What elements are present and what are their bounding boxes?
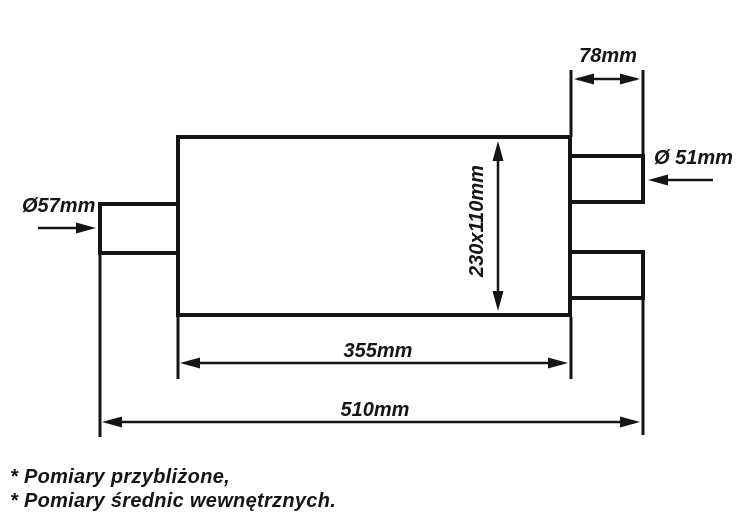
arrowhead-right-icon <box>620 74 640 85</box>
arrowhead-right-icon <box>620 417 640 428</box>
label-total-length: 510mm <box>341 399 410 421</box>
label-outlet-pipe-length: 78mm <box>579 45 637 67</box>
arrowhead-right-icon <box>548 358 568 369</box>
arrowhead-left-icon <box>102 417 122 428</box>
footnote-measurements-approximate: * Pomiary przybliżone, <box>10 465 336 489</box>
footnotes: * Pomiary przybliżone, * Pomiary średnic… <box>10 465 336 513</box>
label-inlet-diameter: Ø57mm <box>22 195 95 217</box>
outlet-pipe-bottom-outline <box>570 252 643 298</box>
label-outlet-diameter: Ø 51mm <box>654 147 733 169</box>
muffler-body-outline <box>178 137 570 315</box>
muffler-dimension-drawing: 78mm Ø57mm Ø 51mm 230x110mm 355mm 510mm … <box>0 0 750 519</box>
arrowhead-left-icon <box>574 74 594 85</box>
inlet-pipe-outline <box>100 204 178 253</box>
outlet-pipe-top-outline <box>570 156 643 202</box>
arrowhead-right-icon <box>76 223 96 234</box>
label-body-cross-section: 230x110mm <box>466 165 488 278</box>
label-body-length: 355mm <box>344 340 413 362</box>
footnote-inner-diameters: * Pomiary średnic wewnętrznych. <box>10 489 336 513</box>
arrowhead-left-icon <box>180 358 200 369</box>
drawing-canvas: 78mm Ø57mm Ø 51mm 230x110mm 355mm 510mm <box>0 0 750 519</box>
arrowhead-left-icon <box>648 175 668 186</box>
